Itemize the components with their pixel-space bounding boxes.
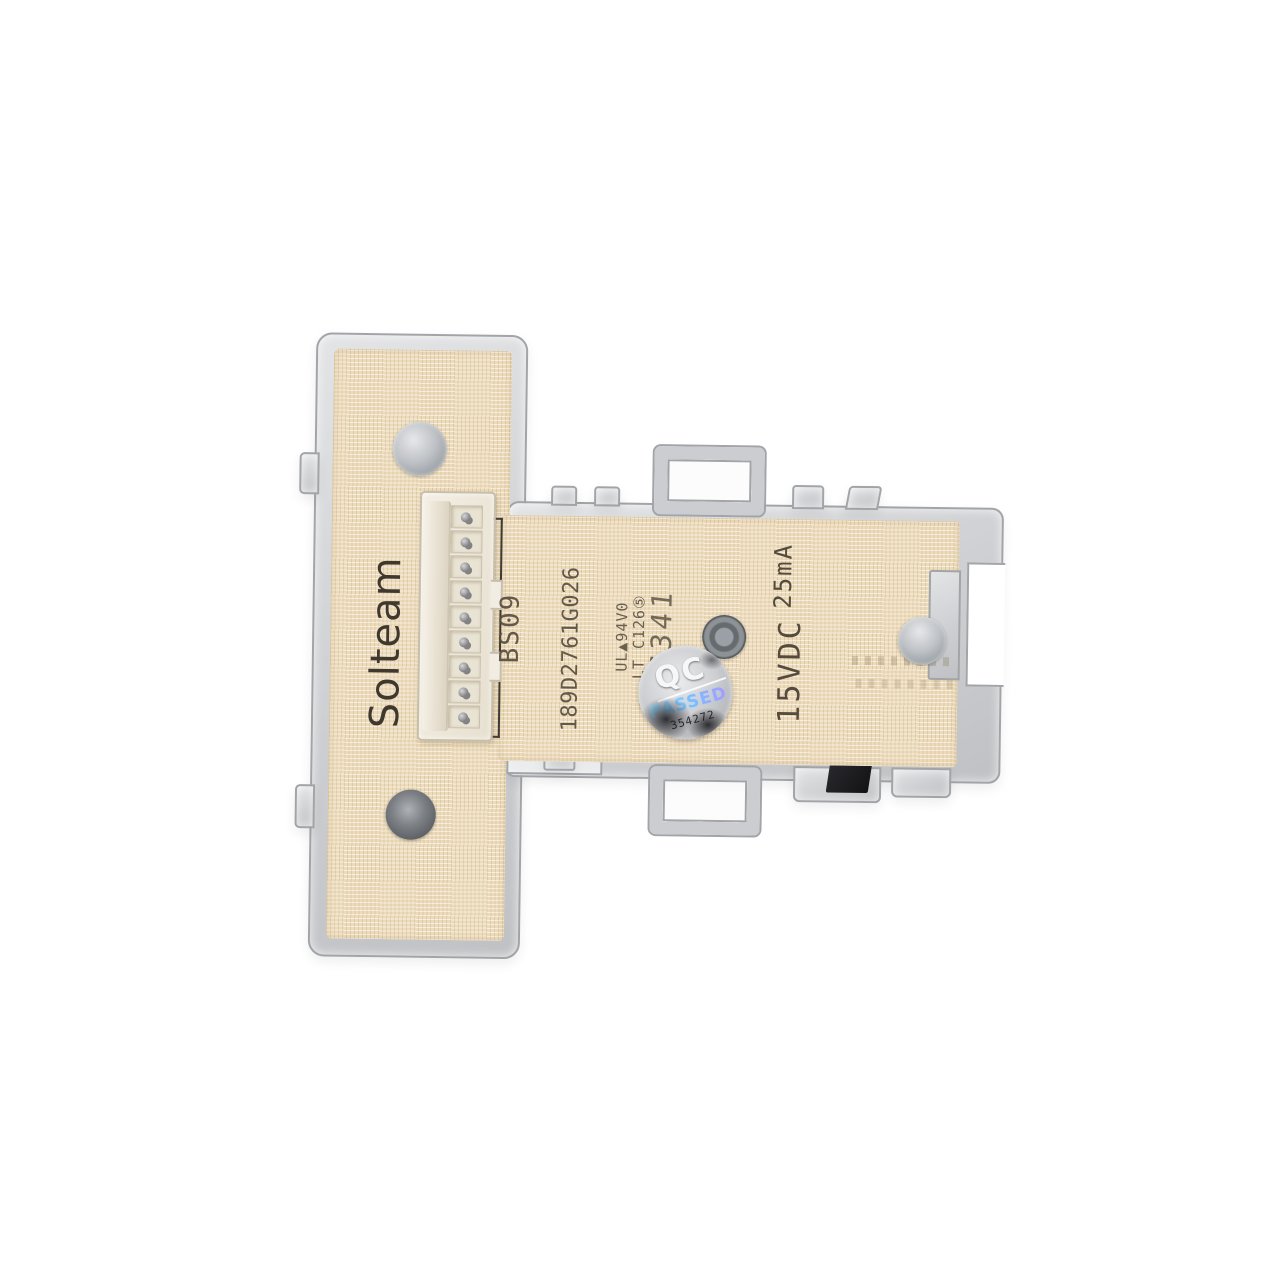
- housing-top-tab-1: [551, 486, 577, 506]
- connector-pin: [458, 687, 468, 697]
- connector-pin: [459, 612, 469, 622]
- housing-left-notch-top: [299, 452, 320, 494]
- connector-pin: [459, 637, 469, 647]
- model-marking: BS09: [496, 593, 527, 664]
- part-number-marking: 189D2761G026: [557, 566, 585, 731]
- connector-pin-cell: [448, 705, 480, 728]
- qc-passed-sticker: QC PASSED 354272: [638, 645, 733, 740]
- connector-pin: [460, 587, 470, 597]
- connector-pin-cell: [449, 630, 481, 653]
- housing-bottom-tab-2: [891, 767, 951, 798]
- connector-pin: [460, 537, 470, 547]
- housing-top-latch-loop: [654, 446, 765, 516]
- connector-pin: [461, 512, 471, 522]
- housing-top-tab-3: [792, 485, 824, 509]
- housing-right-edge-notch: [966, 562, 1006, 687]
- photo-canvas: Solteam BS09 189D2761G026 UL▲94V0 LT C12…: [0, 0, 1280, 1280]
- housing-top-tab-2: [594, 486, 620, 506]
- connector-pin-cell: [450, 555, 482, 578]
- housing-bottom-latch-loop: [649, 766, 760, 836]
- voltage-marking: 15VDC: [773, 618, 809, 724]
- connector-pin-cell: [449, 605, 481, 628]
- connector-pin-cell: [450, 580, 482, 603]
- control-board-assembly: Solteam BS09 189D2761G026 UL▲94V0 LT C12…: [0, 0, 1280, 1280]
- brand-marking: Solteam: [362, 556, 410, 728]
- connector-pin-cell: [451, 505, 483, 528]
- marker-scribble-3: [699, 650, 725, 670]
- connector-pin: [460, 562, 470, 572]
- current-marking: 25mA: [770, 543, 799, 609]
- connector-pin-cell: [450, 530, 482, 553]
- housing-top-tab-4: [845, 486, 883, 510]
- connector-pin-cell: [449, 655, 481, 678]
- wire-harness-connector: [417, 491, 496, 742]
- marker-scribble-1: [640, 697, 693, 740]
- housing-left-notch-bottom: [294, 784, 315, 828]
- connector-side-wall: [422, 501, 451, 731]
- marker-scribble-2: [686, 708, 730, 741]
- connector-pin-cell: [448, 680, 480, 703]
- connector-pin: [458, 712, 468, 722]
- connector-pin: [459, 662, 469, 672]
- faint-print-row-2: [855, 679, 955, 689]
